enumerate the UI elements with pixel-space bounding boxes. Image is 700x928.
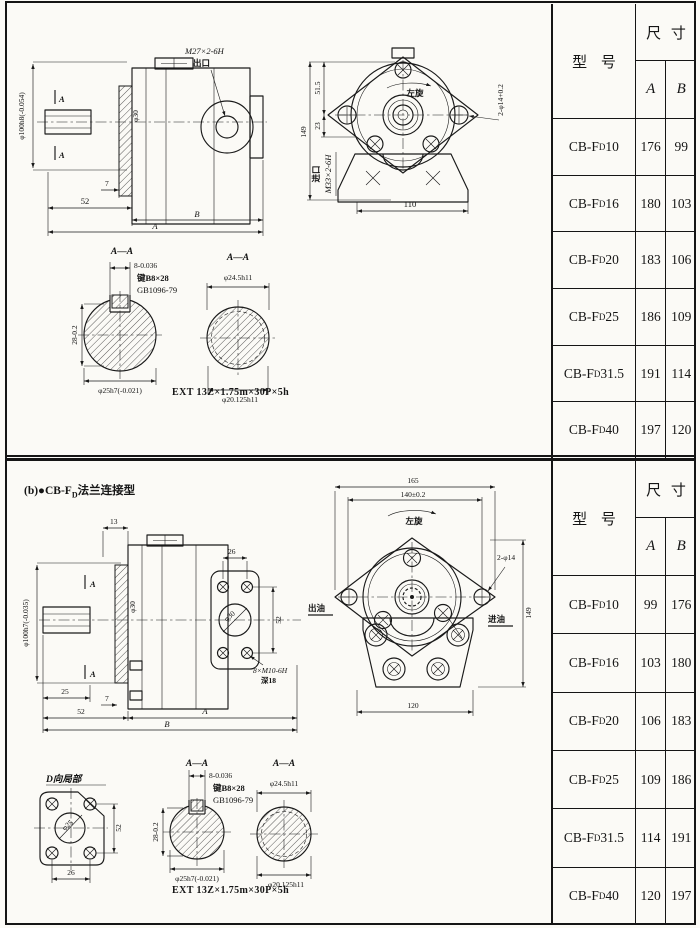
rotation-label: 左旋: [404, 516, 423, 526]
col-header-size-group: 尺 寸 A B: [636, 461, 696, 575]
top-section-key: A—A 8-0.036 键B8×28 GB1096-79 28-0.2 φ25h…: [70, 247, 177, 395]
model-cell: CB-FD16: [553, 176, 636, 232]
model-prefix: CB-F: [569, 772, 599, 788]
outlet-port-label: 出口: [193, 58, 210, 68]
section-mark: A: [89, 669, 96, 679]
col-header-size: 尺 寸: [636, 461, 696, 518]
table-row: CB-FD16 180 103: [553, 176, 696, 233]
value-b: 183: [666, 693, 696, 750]
key-width-label: 8-0.036: [134, 261, 157, 270]
col-header-a: A: [636, 61, 667, 118]
model-prefix: CB-F: [569, 309, 599, 325]
table-row: CB-FD40 197 120: [553, 402, 696, 458]
model-num: 20: [605, 713, 619, 729]
outlet-label: 出油: [308, 603, 325, 613]
value-a: 191: [636, 346, 667, 402]
col-header-size-group: 尺 寸 A B: [636, 4, 696, 118]
value-a: 180: [636, 176, 667, 232]
bottom-section-spline: A—A φ24.5h11 φ20.125h11: [250, 759, 318, 889]
dim-52-vertical: 52: [274, 616, 283, 624]
dim-A: A: [201, 706, 208, 716]
dim-B: B: [194, 209, 199, 219]
value-b: 114: [666, 346, 696, 402]
model-cell: CB-FD16: [553, 634, 636, 691]
section-shaft-label: φ25h7(-0.021): [98, 386, 142, 395]
hub-dia-label: φ30: [131, 110, 140, 122]
model-cell: CB-FD31.5: [553, 346, 636, 402]
dim-165: 165: [407, 476, 419, 485]
model-num: 10: [605, 139, 619, 155]
holes-label: 2-φ14: [497, 553, 515, 562]
value-b: 99: [666, 119, 696, 175]
model-prefix: CB-F: [569, 196, 599, 212]
detail-dim-26: 26: [67, 868, 75, 877]
value-a: 120: [636, 868, 667, 925]
section-height-label: 28-0.2: [70, 325, 79, 345]
title-suffix: 法兰连接型: [78, 485, 136, 497]
table-row: CB-FD25 109 186: [553, 751, 696, 809]
model-num: 31.5: [600, 366, 624, 382]
dim-7: 7: [105, 694, 109, 703]
model-cell: CB-FD40: [553, 868, 636, 925]
key-spec-label: 键B8×28: [136, 273, 169, 283]
value-b: 109: [666, 289, 696, 345]
table-header: 型 号 尺 寸 A B: [553, 4, 696, 119]
bottom-dimension-table: 型 号 尺 寸 A B CB-FD10 99 176 CB-FD16 103 1…: [551, 461, 696, 925]
value-a: 103: [636, 634, 667, 691]
model-num: 16: [605, 655, 619, 671]
model-cell: CB-FD31.5: [553, 809, 636, 866]
detail-title: D向局部: [45, 773, 84, 785]
model-prefix: CB-F: [569, 139, 599, 155]
model-cell: CB-FD20: [553, 693, 636, 750]
dim-120: 120: [407, 701, 419, 710]
key-std-label: GB1096-79: [137, 285, 177, 295]
table-row: CB-FD20 106 183: [553, 693, 696, 751]
inlet-port-label: 进口: [311, 165, 321, 182]
model-cell: CB-FD40: [553, 402, 636, 458]
model-num: 40: [605, 888, 619, 904]
model-cell: CB-FD10: [553, 576, 636, 633]
top-side-view: φ100h8(-0.054) A A M27×2-6H 出口 φ30 7 52: [17, 46, 267, 236]
model-prefix: CB-F: [569, 597, 599, 613]
value-b: 176: [666, 576, 696, 633]
table-row: CB-FD20 183 106: [553, 232, 696, 289]
key-spec-label: 键B8×28: [212, 783, 245, 793]
bottom-detail-d: D向局部 φ25 52 26: [34, 773, 123, 883]
dim-52: 52: [77, 707, 85, 716]
col-header-size: 尺 寸: [636, 4, 696, 61]
bottom-section-key: A—A 8-0.036 键B8×28 GB1096-79 28-0.2 φ25h…: [151, 759, 253, 883]
table-header: 型 号 尺 寸 A B: [553, 461, 696, 576]
inlet-label: 进油: [488, 614, 505, 624]
detail-dim-52: 52: [114, 824, 123, 832]
value-a: 114: [636, 809, 667, 866]
model-num: 10: [605, 597, 619, 613]
section-title: A—A: [110, 247, 133, 257]
value-b: 103: [666, 176, 696, 232]
model-cell: CB-FD25: [553, 751, 636, 808]
value-b: 180: [666, 634, 696, 691]
value-a: 197: [636, 402, 667, 458]
bottom-section-title: (b)●CB-FD法兰连接型: [24, 482, 135, 499]
model-num: 16: [605, 196, 619, 212]
dim-7: 7: [105, 179, 109, 188]
section-mark: A: [58, 94, 65, 104]
col-header-model: 型 号: [553, 461, 636, 575]
value-b: 186: [666, 751, 696, 808]
value-b: 120: [666, 402, 696, 458]
spline-outer-label: φ24.5h11: [270, 779, 299, 788]
dim-23: 23: [313, 122, 322, 130]
model-num: 40: [605, 422, 619, 438]
flange-bore-label: φ30: [222, 609, 237, 624]
section-title: A—A: [185, 759, 208, 769]
col-header-b: B: [666, 518, 696, 575]
shaft-dia-label: φ100h7(-0.035): [21, 599, 30, 647]
value-a: 109: [636, 751, 667, 808]
table-row: CB-FD10 176 99: [553, 119, 696, 176]
value-b: 191: [666, 809, 696, 866]
table-row: CB-FD31.5 114 191: [553, 809, 696, 867]
value-b: 197: [666, 868, 696, 925]
key-width-label: 8-0.036: [209, 771, 232, 780]
table-row: CB-FD31.5 191 114: [553, 346, 696, 403]
model-num: 25: [605, 309, 619, 325]
model-prefix: CB-F: [569, 252, 599, 268]
section-shaft-label: φ25h7(-0.021): [175, 874, 219, 883]
value-a: 186: [636, 289, 667, 345]
value-b: 106: [666, 232, 696, 288]
dim-149: 149: [299, 126, 308, 138]
value-a: 106: [636, 693, 667, 750]
outlet-thread-label: M27×2-6H: [184, 46, 225, 56]
table-row: CB-FD16 103 180: [553, 634, 696, 692]
model-num: 25: [605, 772, 619, 788]
section-mark: A: [58, 150, 65, 160]
model-prefix: CB-F: [564, 366, 594, 382]
dim-149: 149: [524, 607, 533, 619]
inlet-thread-label: M33×2-6H: [323, 154, 333, 195]
section-height-label: 28-0.2: [151, 822, 160, 842]
bolt-depth-label: 深18: [261, 675, 276, 685]
model-prefix: CB-F: [569, 888, 599, 904]
value-a: 183: [636, 232, 667, 288]
top-section-spline: A—A φ24.5h11 φ20.125h11: [200, 253, 276, 404]
model-num: 31.5: [600, 830, 624, 846]
top-front-view: 左旋 51.5 23 149 进口 M33×2-6H 2-φ14+0.2 110: [299, 48, 505, 214]
bolt-thread-label: 8×M10-6H: [253, 666, 288, 675]
section-title: A—A: [226, 253, 249, 263]
bottom-spline-note: EXT 13Z×1.75m×30P×5h: [172, 885, 289, 896]
col-header-model: 型 号: [553, 4, 636, 118]
shaft-dia-label: φ100h8(-0.054): [17, 92, 26, 140]
dim-26: 26: [228, 547, 236, 556]
table-row: CB-FD25 186 109: [553, 289, 696, 346]
model-prefix: CB-F: [569, 422, 599, 438]
table-row: CB-FD10 99 176: [553, 576, 696, 634]
dim-51-5: 51.5: [313, 81, 322, 94]
value-a: 176: [636, 119, 667, 175]
model-prefix: CB-F: [564, 830, 594, 846]
model-num: 20: [605, 252, 619, 268]
dim-25: 25: [61, 687, 69, 696]
key-std-label: GB1096-79: [213, 795, 253, 805]
spline-outer-label: φ24.5h11: [224, 273, 253, 282]
model-prefix: CB-F: [569, 655, 599, 671]
holes-label: 2-φ14+0.2: [496, 84, 505, 116]
table-row: CB-FD40 120 197: [553, 868, 696, 925]
dim-13: 13: [110, 517, 118, 526]
col-header-a: A: [636, 518, 667, 575]
dim-110: 110: [404, 199, 416, 209]
detail-bore-label: φ25: [60, 818, 75, 833]
bottom-front-view: 165 140±0.2 左旋 2-φ14 出油 进油: [308, 476, 533, 716]
model-prefix: CB-F: [569, 713, 599, 729]
dim-A: A: [151, 221, 158, 231]
dim-52: 52: [81, 196, 90, 206]
col-header-b: B: [666, 61, 696, 118]
section-mark: A: [89, 579, 96, 589]
model-cell: CB-FD25: [553, 289, 636, 345]
section-title: A—A: [272, 759, 295, 769]
dim-140: 140±0.2: [401, 490, 426, 499]
rotation-label: 左旋: [405, 88, 424, 98]
model-cell: CB-FD20: [553, 232, 636, 288]
top-spline-note: EXT 13Z×1.75m×30P×5h: [172, 387, 289, 398]
bottom-side-view: 13 φ100h7(-0.035) A A φ30 φ30 2: [21, 517, 301, 733]
dim-B: B: [164, 719, 169, 729]
top-dimension-table: 型 号 尺 寸 A B CB-FD10 176 99 CB-FD16 180 1…: [551, 4, 696, 458]
model-cell: CB-FD10: [553, 119, 636, 175]
value-a: 99: [636, 576, 667, 633]
hub-dia-label: φ30: [128, 601, 137, 613]
title-prefix: (b)●CB-F: [24, 485, 72, 497]
